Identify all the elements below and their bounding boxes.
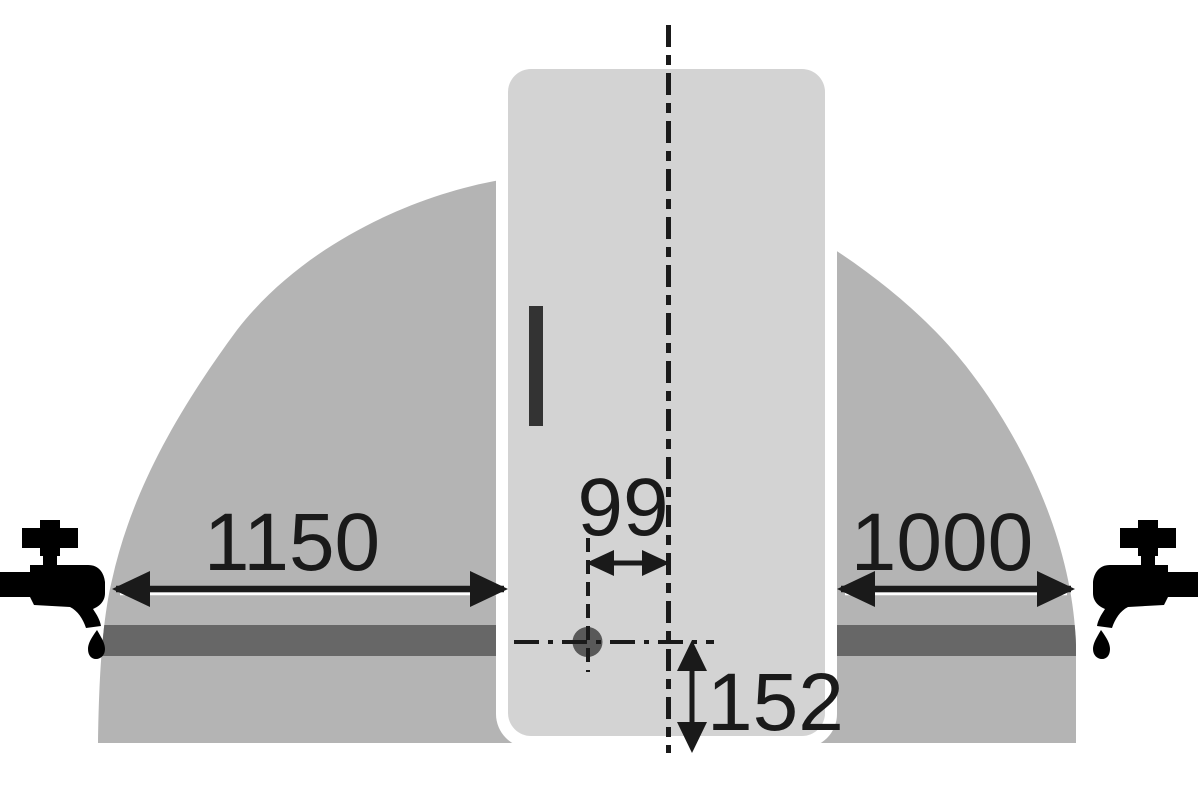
right-clearance-label: 1000	[851, 497, 1033, 588]
hole-offset-label: 99	[577, 462, 668, 553]
left-clearance-label: 1150	[204, 497, 380, 588]
water-tap-icon-right	[1093, 520, 1198, 659]
appliance-handle-icon	[529, 306, 543, 426]
water-tap-icon-left	[0, 520, 105, 659]
diagram-canvas: 1150 1000 99 152	[0, 0, 1198, 800]
hole-height-label: 152	[707, 657, 844, 748]
installation-diagram: 1150 1000 99 152	[0, 0, 1198, 800]
